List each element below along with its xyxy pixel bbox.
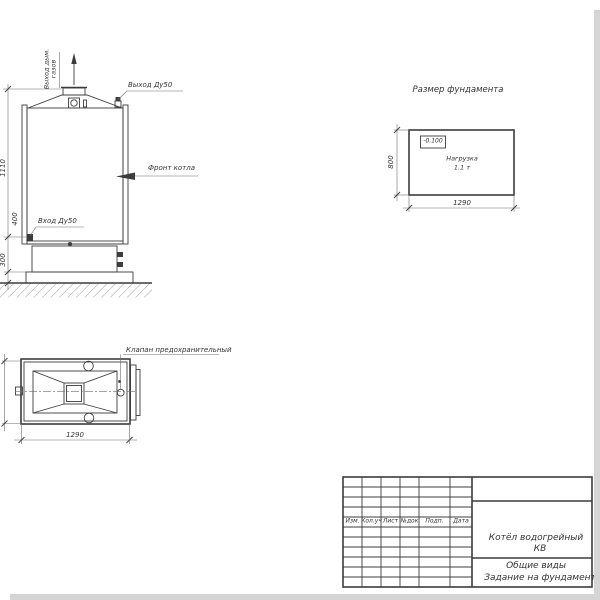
- safety-valve-label: Клапан предохранительный: [126, 346, 232, 354]
- boiler-front-label: Фронт котла: [148, 164, 195, 172]
- doc-title-line1: Котёл водогрейный: [489, 533, 584, 543]
- col-podp: Подп.: [425, 519, 443, 526]
- col-ndok: №док: [401, 519, 419, 526]
- dim-inlet: 400: [11, 212, 19, 225]
- inlet-fitting: [27, 234, 33, 241]
- safety-valve-symbol: [117, 389, 124, 396]
- dim-foundation-width: 1290: [453, 199, 471, 207]
- load-value: 1.1 т: [454, 164, 470, 171]
- col-data: Дата: [453, 519, 469, 526]
- load-label: Нагрузка: [446, 155, 478, 162]
- dim-base: 300: [0, 253, 7, 266]
- inlet-label: Вход Ду50: [38, 217, 77, 225]
- level-mark: -0.100: [423, 139, 442, 146]
- doc-type-line2: Задание на фундамент: [484, 573, 596, 583]
- outlet-label: Выход Ду50: [128, 81, 172, 89]
- dim-foundation-depth: 800: [387, 155, 395, 168]
- doc-type-line1: Общие виды: [506, 561, 566, 571]
- front-direction-arrow-icon: [116, 173, 135, 181]
- flue-gas-arrow-icon: [71, 53, 76, 64]
- dim-height: 1110: [0, 159, 7, 177]
- sheet-shadow-right: [594, 10, 600, 600]
- drawing-linework: [0, 0, 600, 600]
- flue-gas-label: Выход дым. газов: [44, 49, 59, 90]
- sheet-shadow-bottom: [10, 594, 600, 600]
- boiler-top-view: [2, 354, 220, 444]
- drawing-sheet: Выход дым. газов Выход Ду50 Фронт котла …: [0, 0, 600, 600]
- ground-hatch: [0, 284, 152, 298]
- col-koluch: Кол.уч: [361, 519, 382, 526]
- doc-title-line2: КВ: [534, 544, 547, 554]
- dim-topview-width: 1290: [66, 431, 84, 439]
- col-list: Лист: [383, 519, 398, 526]
- foundation-title: Размер фундамента: [413, 86, 504, 96]
- col-izm: Изм.: [345, 519, 359, 526]
